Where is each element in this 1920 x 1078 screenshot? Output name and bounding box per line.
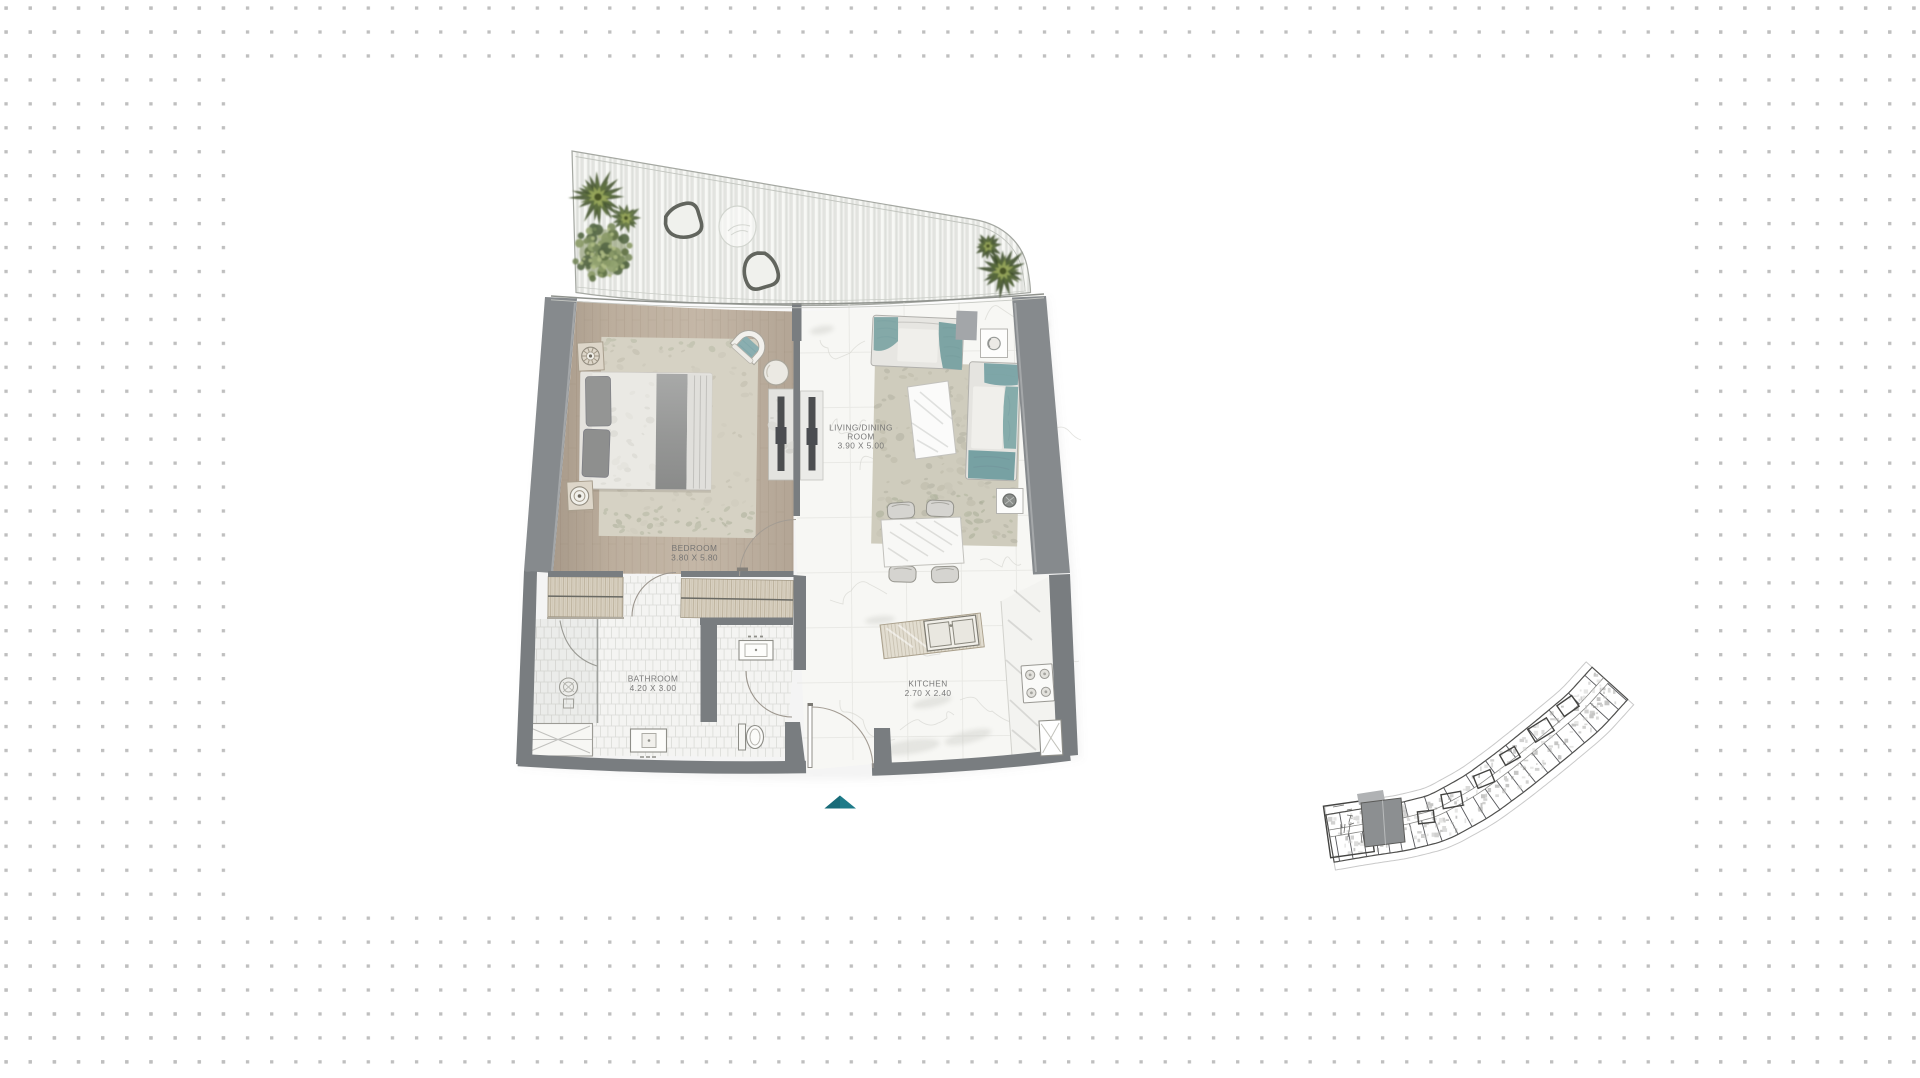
svg-text:BATHROOM: BATHROOM [628,674,679,684]
svg-text:BEDROOM: BEDROOM [672,543,718,553]
svg-text:2.70 X 2.40: 2.70 X 2.40 [905,688,952,698]
svg-text:3.90 X 5.00: 3.90 X 5.00 [838,441,885,451]
svg-text:3.80 X 5.80: 3.80 X 5.80 [671,553,718,563]
svg-text:4.20 X 3.00: 4.20 X 3.00 [630,683,677,693]
svg-text:KITCHEN: KITCHEN [908,679,947,689]
